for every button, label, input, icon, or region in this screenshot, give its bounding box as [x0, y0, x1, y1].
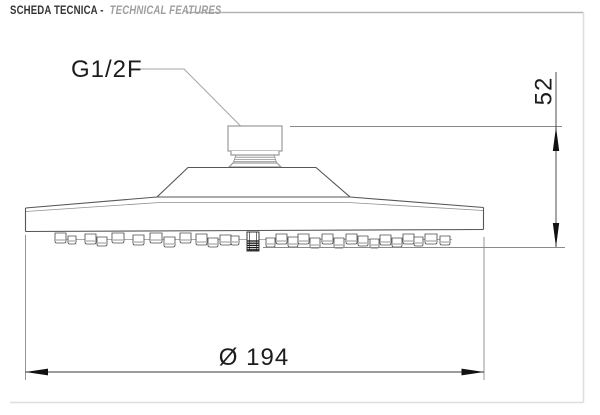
- neck-flare: [229, 163, 281, 167]
- nozzle: [276, 234, 287, 244]
- nozzle: [288, 237, 298, 247]
- nozzle: [97, 237, 107, 246]
- nozzle: [112, 233, 124, 243]
- nozzle: [310, 238, 320, 248]
- page-header: SCHEDA TECNICA - TECHNICAL FEATURES: [10, 3, 221, 17]
- nozzle: [414, 237, 423, 246]
- nozzle: [133, 235, 144, 245]
- arrow-left-icon: [26, 369, 49, 376]
- nozzle: [403, 234, 414, 244]
- nozzle: [164, 237, 175, 247]
- head-cone: [157, 168, 350, 198]
- disc-top-inner-edge: [26, 203, 484, 212]
- arrow-down-icon: [553, 223, 559, 247]
- nozzle: [440, 236, 450, 245]
- connector-block: [228, 126, 282, 151]
- nozzle: [55, 233, 66, 243]
- nozzle: [208, 238, 218, 247]
- arrow-right-icon: [462, 369, 485, 376]
- nozzle: [180, 233, 191, 243]
- disc-bottom-edge: [26, 230, 484, 232]
- nozzle: [220, 235, 231, 245]
- connection-label: G1/2F: [71, 56, 143, 83]
- nozzle: [425, 234, 437, 244]
- nozzle: [150, 233, 162, 243]
- header-title-english: TECHNICAL FEATURES: [110, 3, 222, 17]
- height-dimension-label: 52: [531, 77, 558, 106]
- nozzle: [380, 235, 391, 245]
- connector-step: [231, 151, 279, 155]
- spec-sheet: 52 Ø 194 G1/2F SCHEDA TECNICA - TECHNICA…: [0, 0, 600, 415]
- nozzle: [334, 238, 344, 248]
- nozzle: [358, 236, 368, 246]
- header-title-italian: SCHEDA TECNICA -: [10, 3, 104, 17]
- nozzle: [266, 238, 275, 247]
- nozzle: [392, 238, 402, 247]
- nozzle-row: [55, 232, 450, 251]
- nozzle: [370, 239, 379, 248]
- nozzle: [298, 234, 309, 244]
- arrow-up-icon: [553, 127, 559, 151]
- technical-drawing: 52 Ø 194 G1/2F: [0, 0, 600, 415]
- diameter-dimension-label: Ø 194: [219, 344, 289, 371]
- nozzle: [85, 234, 96, 244]
- nozzle: [231, 236, 239, 245]
- nozzle: [196, 234, 207, 245]
- nozzle: [322, 234, 333, 244]
- nozzle: [68, 236, 76, 244]
- nozzle: [346, 234, 357, 244]
